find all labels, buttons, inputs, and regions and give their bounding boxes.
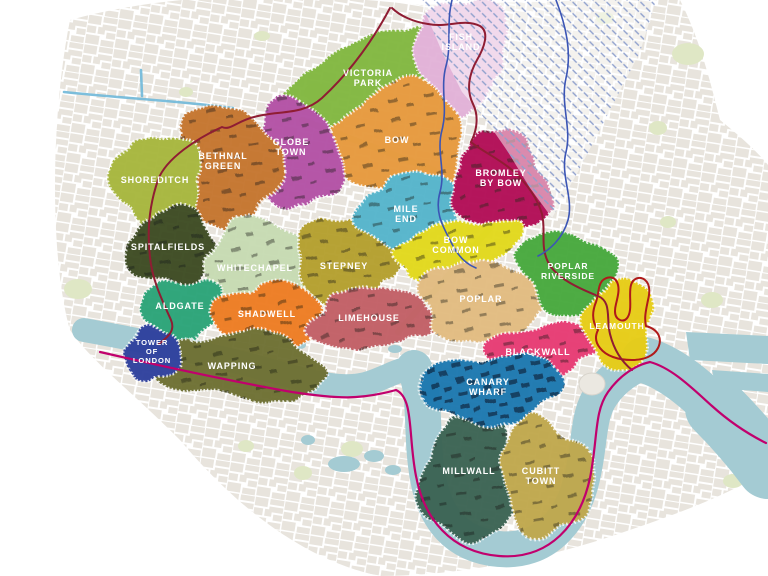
district-label-bethnal-green: BETHNALGREEN xyxy=(198,151,247,171)
district-label-leamouth: LEAMOUTH xyxy=(589,321,644,331)
dock-pond xyxy=(301,435,315,445)
dock-pond xyxy=(364,450,384,462)
district-label-bromley-by-bow: BROMLEYBY BOW xyxy=(475,168,526,188)
park-patch xyxy=(179,87,193,97)
district-label-wapping: WAPPING xyxy=(208,361,257,371)
district-label-canary-wharf: CANARYWHARF xyxy=(466,377,510,397)
district-label-spitalfields: SPITALFIELDS xyxy=(131,242,205,252)
district-label-globe-town: GLOBETOWN xyxy=(273,137,310,157)
district-label-stepney: STEPNEY xyxy=(320,261,368,271)
district-label-shadwell: SHADWELL xyxy=(238,309,296,319)
district-label-millwall: MILLWALL xyxy=(442,466,495,476)
district-label-bow: BOW xyxy=(385,135,410,145)
district-label-poplar-riverside: POPLARRIVERSIDE xyxy=(541,261,595,281)
park-patch xyxy=(341,441,363,457)
park-patch xyxy=(672,43,704,65)
district-label-blackwall: BLACKWALL xyxy=(505,347,570,357)
park-patch xyxy=(238,440,254,452)
park-patch xyxy=(701,292,723,308)
park-patch xyxy=(294,466,312,480)
park-patch xyxy=(254,31,270,41)
district-label-aldgate: ALDGATE xyxy=(155,301,204,311)
district-label-mile-end: MILEEND xyxy=(393,204,418,224)
dock-pond xyxy=(385,465,401,475)
district-label-limehouse: LIMEHOUSE xyxy=(338,313,400,323)
greenwich-dome xyxy=(579,373,605,395)
royal-docks-basin xyxy=(686,332,768,364)
district-label-whitechapel: WHITECHAPEL xyxy=(217,263,293,273)
district-label-poplar: POPLAR xyxy=(460,294,503,304)
limehouse-basin xyxy=(388,345,402,353)
district-label-shoreditch: SHOREDITCH xyxy=(121,175,190,185)
park-patch xyxy=(649,121,667,135)
canal-stub xyxy=(141,70,142,96)
map-canvas: VICTORIAPARKFISHISLANDBOWGLOBETOWNBETHNA… xyxy=(0,0,768,576)
greenland-dock xyxy=(328,456,360,472)
park-patch xyxy=(64,279,92,299)
park-patch xyxy=(660,216,676,228)
east-london-districts-map: VICTORIAPARKFISHISLANDBOWGLOBETOWNBETHNA… xyxy=(0,0,768,576)
district-label-cubitt-town: CUBITTTOWN xyxy=(522,466,560,486)
